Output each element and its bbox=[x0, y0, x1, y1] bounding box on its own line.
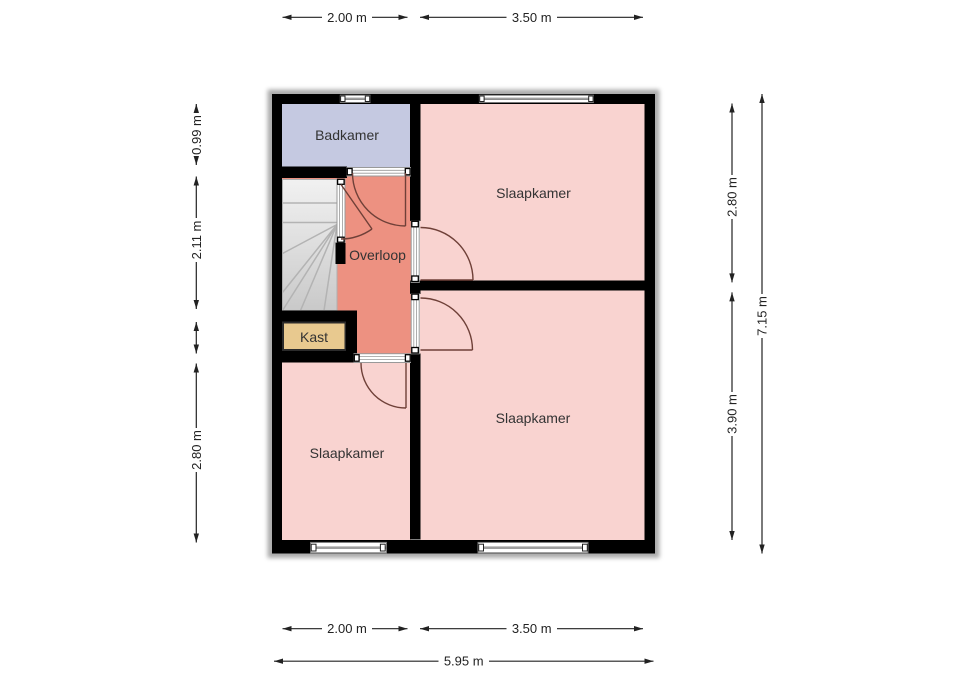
svg-text:Slaapkamer: Slaapkamer bbox=[496, 185, 571, 201]
svg-text:3.50 m: 3.50 m bbox=[512, 621, 552, 636]
svg-text:Slaapkamer: Slaapkamer bbox=[310, 445, 385, 461]
svg-text:3.50 m: 3.50 m bbox=[512, 10, 552, 25]
svg-text:Slaapkamer: Slaapkamer bbox=[496, 410, 571, 426]
svg-text:3.90 m: 3.90 m bbox=[725, 394, 740, 434]
svg-text:2.11 m: 2.11 m bbox=[189, 221, 204, 260]
svg-text:7.15 m: 7.15 m bbox=[755, 296, 770, 336]
svg-text:Kast: Kast bbox=[300, 329, 328, 345]
svg-text:2.80 m: 2.80 m bbox=[189, 430, 204, 470]
svg-text:2.00 m: 2.00 m bbox=[327, 621, 367, 636]
svg-text:2.80 m: 2.80 m bbox=[725, 177, 740, 217]
svg-text:5.95 m: 5.95 m bbox=[444, 654, 484, 669]
svg-text:Badkamer: Badkamer bbox=[315, 127, 379, 143]
svg-text:0.99 m: 0.99 m bbox=[189, 115, 204, 155]
svg-text:2.00 m: 2.00 m bbox=[327, 10, 367, 25]
svg-text:Overloop: Overloop bbox=[349, 247, 406, 263]
